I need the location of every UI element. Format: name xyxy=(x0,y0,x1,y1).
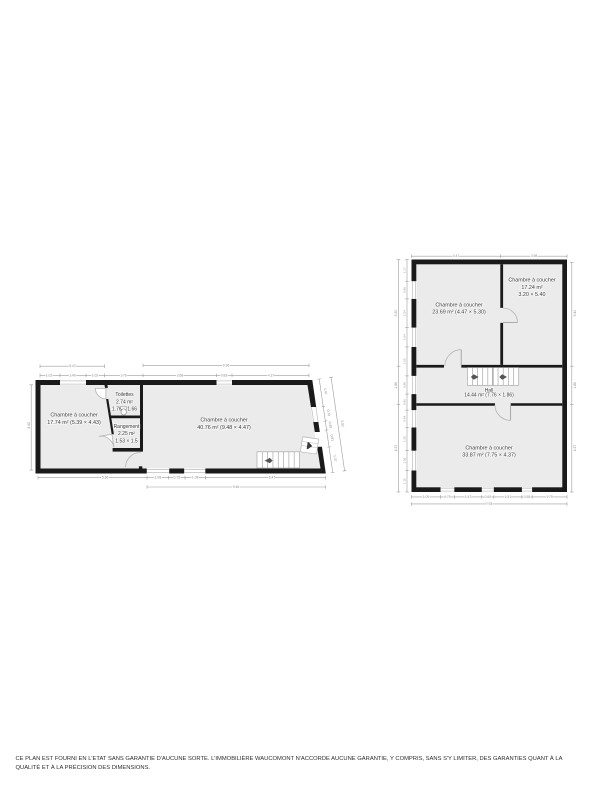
svg-text:1.47: 1.47 xyxy=(465,495,472,499)
svg-text:1.09: 1.09 xyxy=(423,495,430,499)
svg-text:0.75: 0.75 xyxy=(444,495,451,499)
svg-text:0.75: 0.75 xyxy=(173,476,180,480)
svg-text:4.43: 4.43 xyxy=(27,422,31,429)
svg-text:7.78: 7.78 xyxy=(486,502,493,506)
svg-text:Chambre à coucher: Chambre à coucher xyxy=(435,303,483,309)
svg-text:1.02: 1.02 xyxy=(46,373,53,377)
svg-text:2.25 m²: 2.25 m² xyxy=(118,431,135,437)
svg-text:4.17: 4.17 xyxy=(268,373,275,377)
svg-text:0.98: 0.98 xyxy=(403,382,407,388)
svg-text:1.76: 1.76 xyxy=(120,373,127,377)
svg-text:4.37: 4.37 xyxy=(394,445,398,452)
svg-text:33.87 m² (7.75 × 4.37): 33.87 m² (7.75 × 4.37) xyxy=(462,453,516,459)
svg-text:1.51: 1.51 xyxy=(504,495,511,499)
svg-text:0.65: 0.65 xyxy=(484,495,491,499)
svg-text:23.69 m² (4.47 × 5.30): 23.69 m² (4.47 × 5.30) xyxy=(432,309,486,315)
svg-text:1.54: 1.54 xyxy=(403,310,407,316)
svg-text:1.04: 1.04 xyxy=(403,334,407,340)
svg-text:14.44 m² (7.76 × 1.86): 14.44 m² (7.76 × 1.86) xyxy=(464,393,514,399)
svg-text:2.74 m²: 2.74 m² xyxy=(116,400,133,406)
svg-text:1.79: 1.79 xyxy=(546,495,553,499)
svg-text:9.36: 9.36 xyxy=(223,363,230,367)
svg-text:3.98: 3.98 xyxy=(531,254,538,258)
svg-text:1.53 × 1.5: 1.53 × 1.5 xyxy=(115,438,138,444)
svg-text:5.30: 5.30 xyxy=(394,310,398,317)
svg-text:4.37: 4.37 xyxy=(573,445,577,452)
svg-text:0.95: 0.95 xyxy=(403,287,407,293)
svg-text:5.47: 5.47 xyxy=(69,364,76,368)
svg-text:1.08: 1.08 xyxy=(154,476,161,480)
svg-text:Rangement: Rangement xyxy=(114,424,140,430)
svg-text:1.55: 1.55 xyxy=(403,358,407,364)
svg-text:6.47: 6.47 xyxy=(269,476,276,480)
svg-text:1.86: 1.86 xyxy=(394,382,398,389)
svg-text:0.94: 0.94 xyxy=(403,416,407,422)
svg-text:1.08: 1.08 xyxy=(192,476,199,480)
svg-text:5.40: 5.40 xyxy=(573,310,577,317)
svg-text:3.20 × 5.40: 3.20 × 5.40 xyxy=(518,292,545,298)
svg-text:1.40: 1.40 xyxy=(69,373,76,377)
svg-text:0.86: 0.86 xyxy=(403,399,407,405)
svg-text:1.86: 1.86 xyxy=(573,382,577,389)
svg-text:1.25: 1.25 xyxy=(403,436,407,442)
svg-text:1.15: 1.15 xyxy=(403,478,407,484)
svg-text:Chambre à coucher: Chambre à coucher xyxy=(465,446,513,452)
svg-text:5.36: 5.36 xyxy=(102,476,109,480)
svg-text:Toilettes: Toilettes xyxy=(115,392,134,398)
svg-text:Chambre à coucher: Chambre à coucher xyxy=(200,417,248,423)
svg-text:0.55: 0.55 xyxy=(524,495,531,499)
svg-text:1.06: 1.06 xyxy=(403,457,407,463)
svg-text:Chambre à coucher: Chambre à coucher xyxy=(508,278,556,284)
svg-text:9.46: 9.46 xyxy=(233,485,240,489)
svg-text:17.74 m² (5.39 × 4.43): 17.74 m² (5.39 × 4.43) xyxy=(47,420,101,426)
svg-text:40.76 m² (9.48 × 4.47): 40.76 m² (9.48 × 4.47) xyxy=(197,425,251,431)
svg-text:0.83: 0.83 xyxy=(221,373,228,377)
svg-text:1.17: 1.17 xyxy=(403,267,407,273)
svg-text:Chambre à coucher: Chambre à coucher xyxy=(50,413,98,419)
svg-text:1.02: 1.02 xyxy=(92,373,99,377)
svg-text:3.68: 3.68 xyxy=(177,373,184,377)
svg-text:4.47: 4.47 xyxy=(453,254,460,258)
svg-text:17.24 m²: 17.24 m² xyxy=(521,285,542,291)
